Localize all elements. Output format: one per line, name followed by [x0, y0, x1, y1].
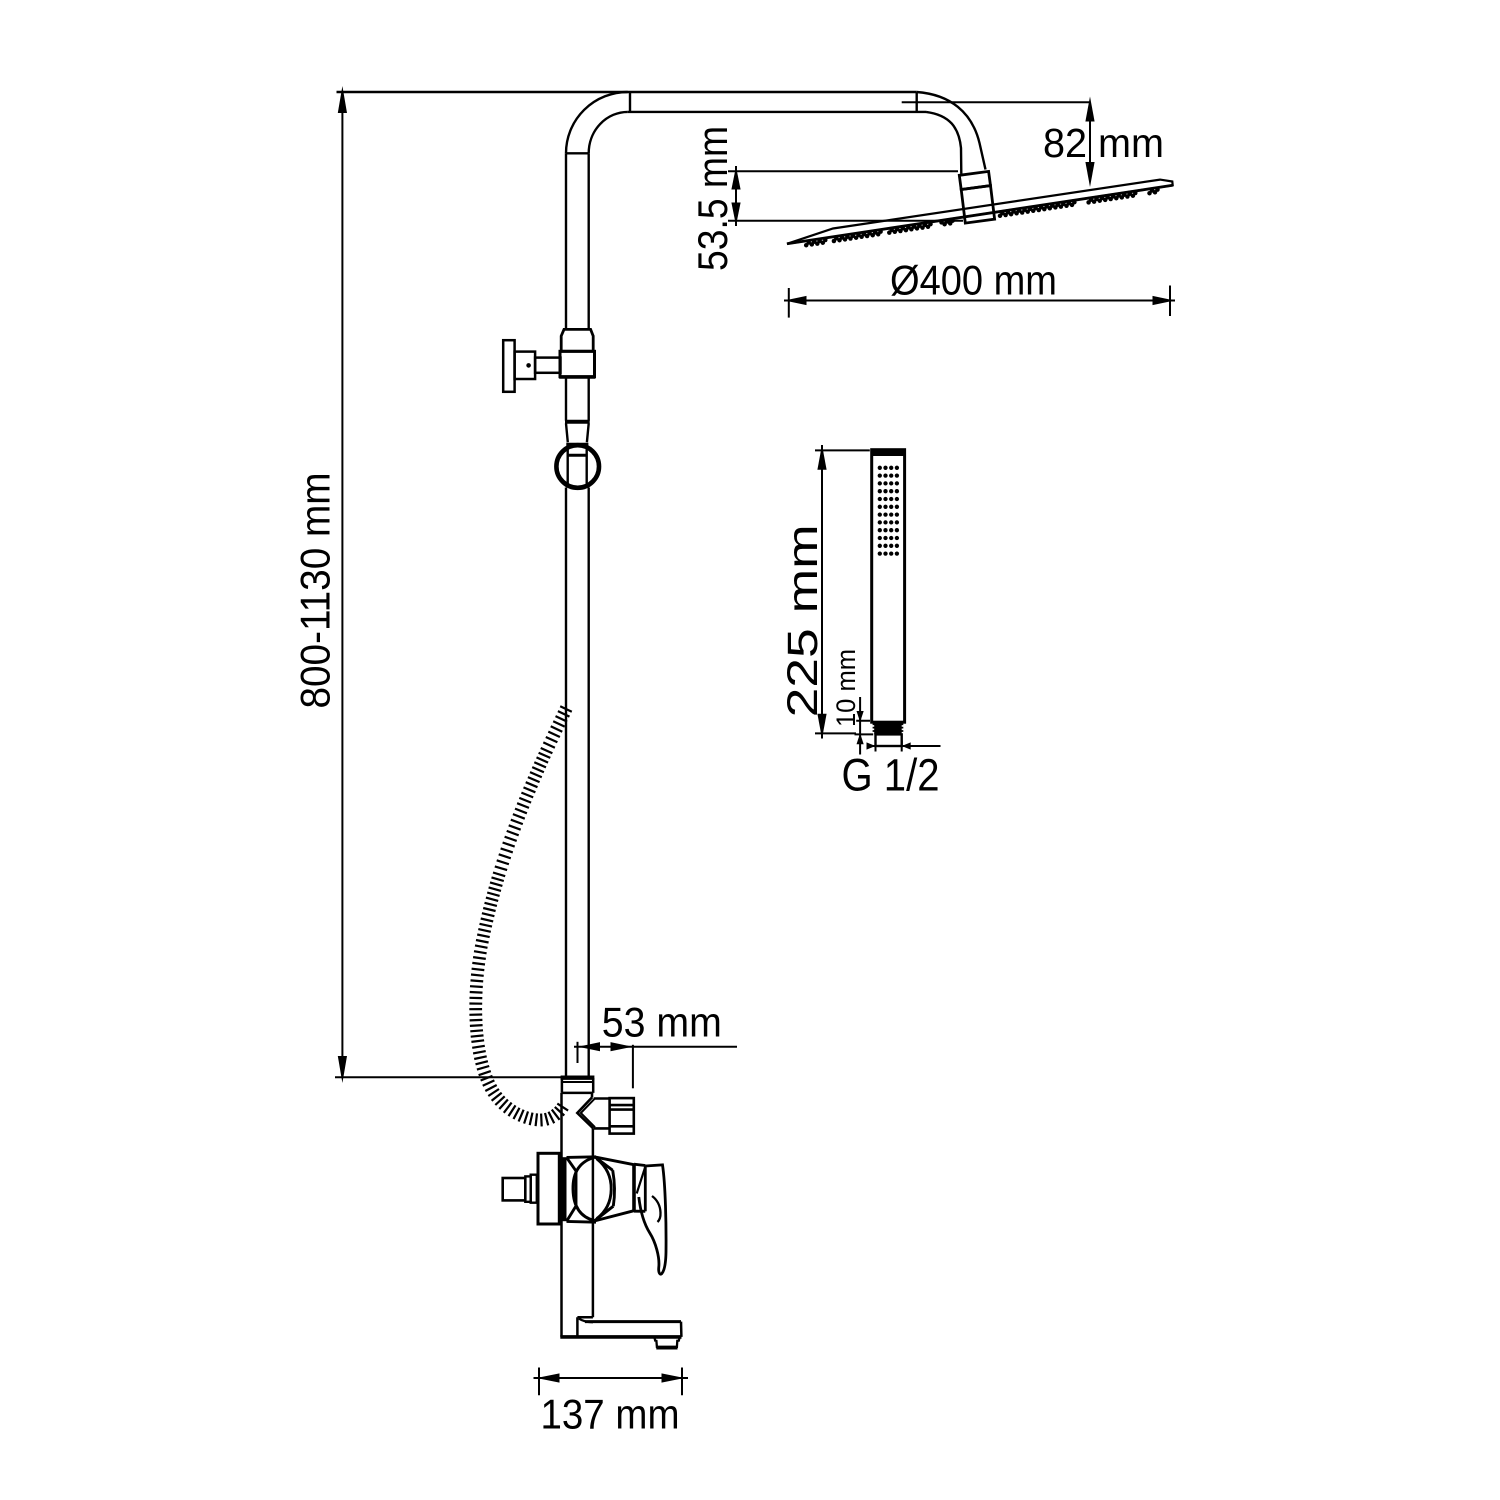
svg-text:Ø400 mm: Ø400 mm: [890, 257, 1057, 304]
svg-text:10 mm: 10 mm: [831, 649, 861, 727]
svg-text:82 mm: 82 mm: [1043, 120, 1164, 166]
svg-text:G 1/2: G 1/2: [842, 750, 940, 801]
svg-text:53.5 mm: 53.5 mm: [689, 126, 736, 271]
svg-text:225 mm: 225 mm: [779, 524, 827, 717]
svg-text:800-1130 mm: 800-1130 mm: [292, 473, 339, 709]
svg-text:53 mm: 53 mm: [602, 999, 722, 1046]
svg-text:137 mm: 137 mm: [541, 1391, 680, 1438]
